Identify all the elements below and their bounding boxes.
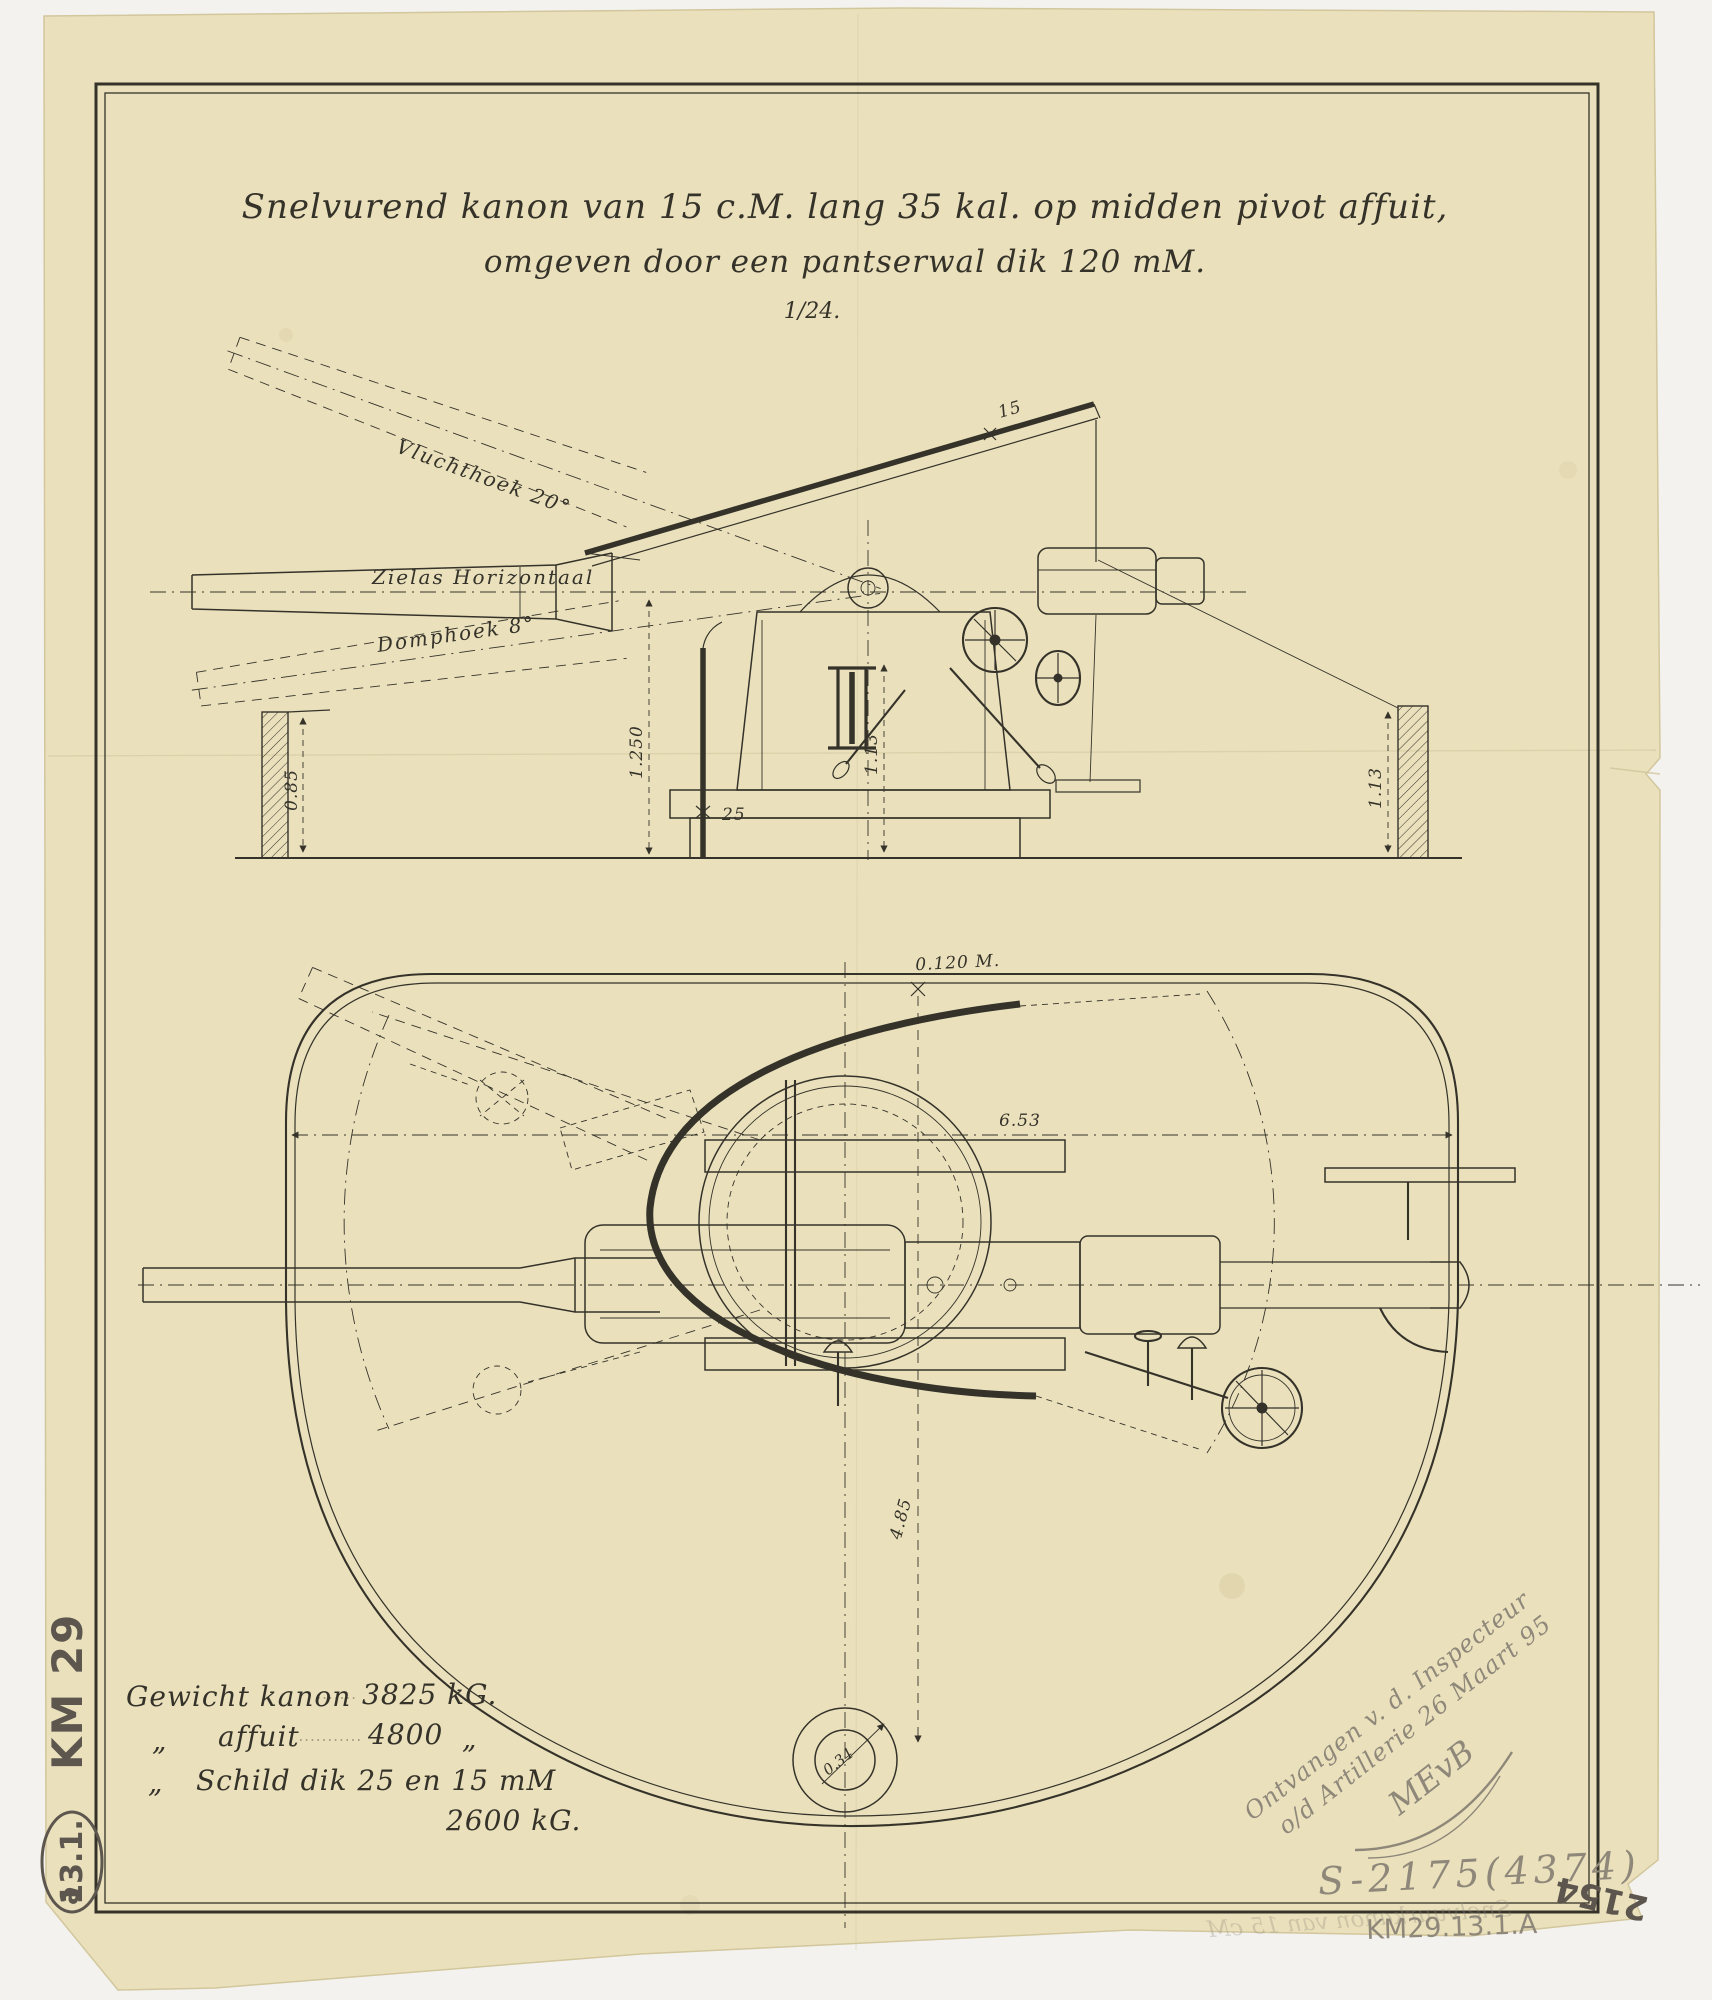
weight-row1-value: 3825 kG.	[362, 1678, 497, 1711]
weight-row3-ditto: „	[148, 1766, 164, 1799]
drawing-scale: 1/24.	[784, 299, 840, 324]
drawing-title-line2: omgeven door een pantserwal dik 120 mM.	[484, 244, 1206, 280]
elevating-handwheel	[963, 608, 1027, 672]
plan-handwheel	[1222, 1368, 1302, 1448]
drawing-canvas: Snelvurend kanon van 15 c.M. lang 35 kal…	[0, 0, 1712, 2000]
training-handwheel	[1036, 651, 1080, 705]
weight-row1-label: Gewicht kanon	[126, 1680, 351, 1713]
weight-row2-label: affuit	[218, 1720, 300, 1753]
weight-row2-ditto1: „	[152, 1724, 168, 1757]
dim-wall-right-text: 1.13	[1366, 767, 1386, 809]
scanned-drawing-sheet: Snelvurend kanon van 15 c.M. lang 35 kal…	[0, 0, 1712, 2000]
dim-axis-height-text: 1.250	[627, 725, 647, 779]
armour-wall-right-section	[1398, 706, 1428, 858]
weight-row2-ditto2: „	[462, 1722, 478, 1755]
dim-diameter-text: 6.53	[999, 1111, 1041, 1131]
margin-collection-mark: KM 29	[43, 1613, 92, 1770]
weight-row2-value: 4800	[367, 1718, 443, 1751]
drawing-title-line1: Snelvurend kanon van 15 c.M. lang 35 kal…	[242, 187, 1449, 227]
weight-row4-value: 2600 kG.	[445, 1804, 581, 1837]
weight-row3-label: Schild dik 25 en 15 mM	[196, 1764, 556, 1797]
paper-stain	[1219, 1573, 1245, 1599]
dim-wall-left-text: 0.85	[282, 769, 302, 811]
dim-shield-front-text: 25	[721, 805, 746, 825]
